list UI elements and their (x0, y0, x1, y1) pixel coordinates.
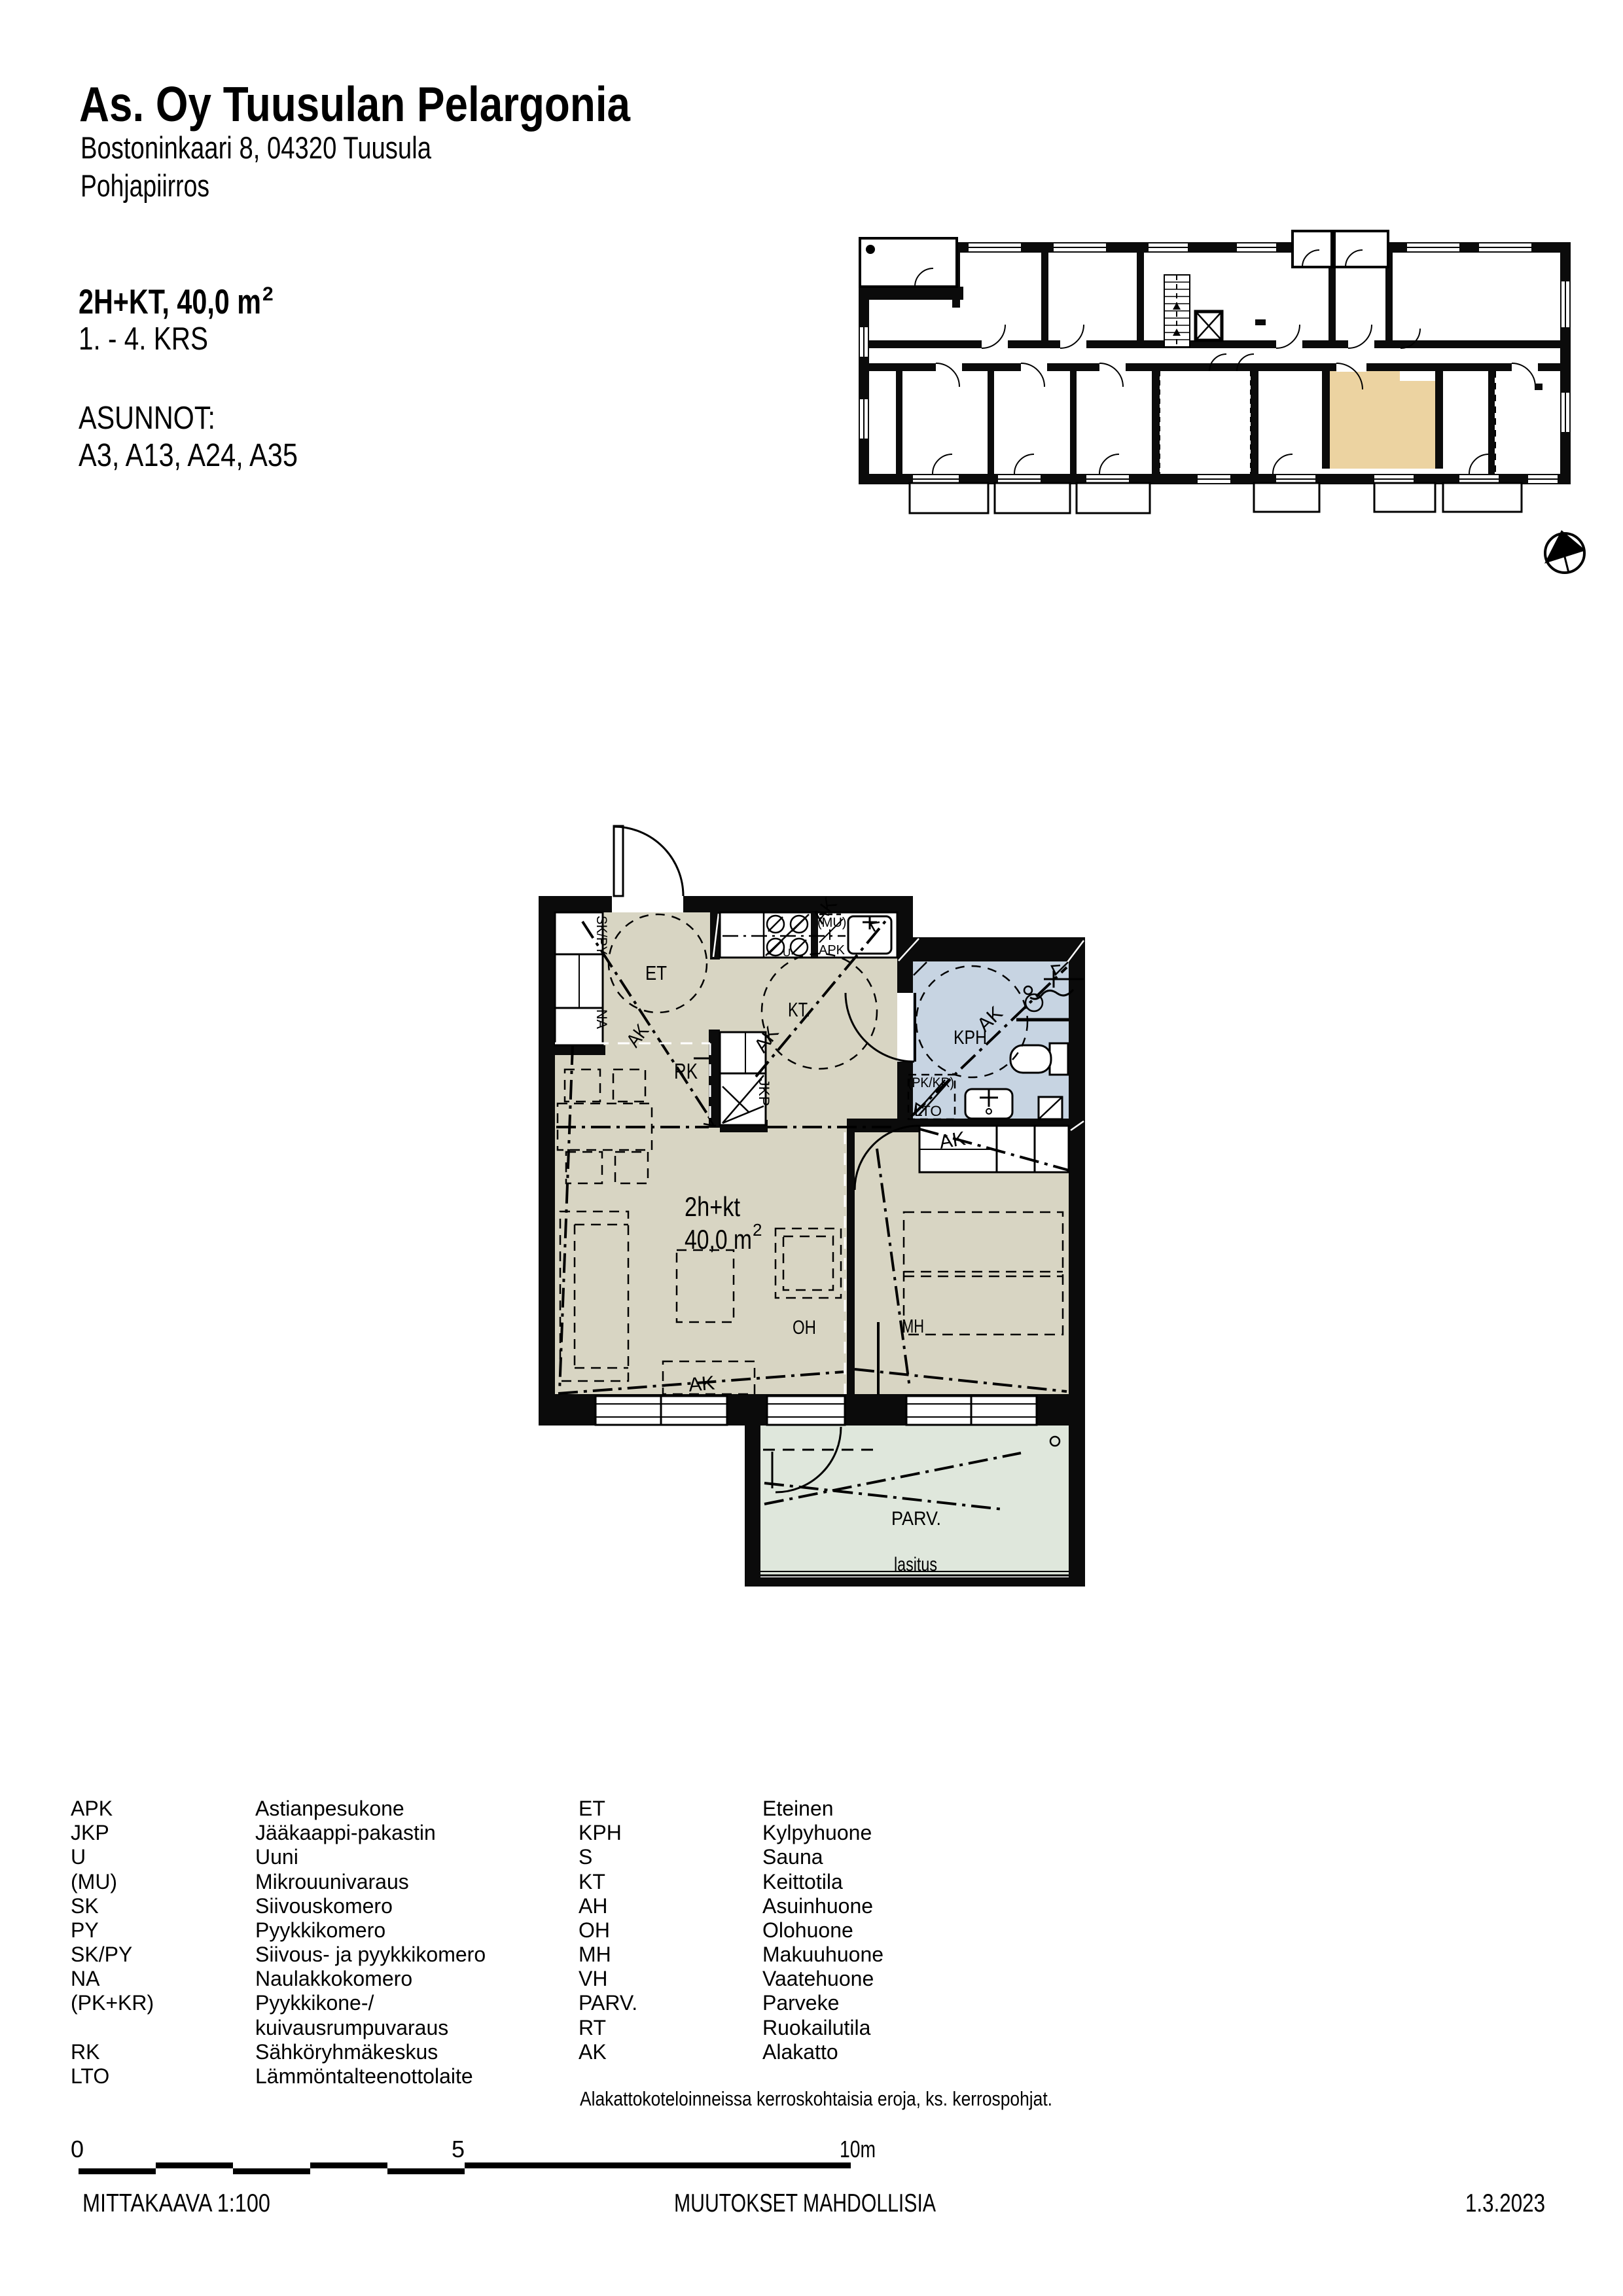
svg-text:AK: AK (579, 2040, 607, 2064)
svg-text:Pyykkikone-/: Pyykkikone-/ (255, 1991, 374, 2015)
svg-text:APK: APK (71, 1797, 113, 1820)
svg-text:40,0 m: 40,0 m (685, 1224, 752, 1255)
svg-text:Makuuhuone: Makuuhuone (762, 1943, 883, 1966)
svg-text:AH: AH (579, 1894, 607, 1918)
svg-text:Uuni: Uuni (255, 1845, 298, 1869)
svg-text:Vaatehuone: Vaatehuone (762, 1967, 874, 1990)
svg-text:MITTAKAAVA 1:100: MITTAKAAVA 1:100 (82, 2189, 270, 2217)
svg-text:Sähköryhmäkeskus: Sähköryhmäkeskus (255, 2040, 438, 2064)
svg-text:Siivouskomero: Siivouskomero (255, 1894, 393, 1918)
svg-text:LTO: LTO (71, 2064, 109, 2088)
svg-text:VH: VH (579, 1967, 607, 1990)
svg-text:OH: OH (793, 1317, 816, 1338)
svg-text:Keittotila: Keittotila (762, 1870, 843, 1893)
svg-text:SK: SK (71, 1894, 99, 1918)
svg-text:ET: ET (645, 961, 667, 984)
svg-text:1.3.2023: 1.3.2023 (1465, 2189, 1545, 2217)
svg-text:lasitus: lasitus (894, 1554, 937, 1575)
svg-text:Siivous- ja pyykkikomero: Siivous- ja pyykkikomero (255, 1943, 486, 1966)
svg-text:2: 2 (753, 1220, 762, 1240)
svg-text:Kylpyhuone: Kylpyhuone (762, 1821, 872, 1844)
svg-text:Alakattokoteloinneissa kerrosk: Alakattokoteloinneissa kerroskohtaisia e… (580, 2087, 1052, 2110)
svg-text:NA: NA (71, 1967, 100, 1990)
svg-text:KPH: KPH (579, 1821, 622, 1844)
svg-text:SK/PY: SK/PY (71, 1943, 132, 1966)
svg-text:MH: MH (902, 1316, 924, 1337)
svg-text:SK/PY: SK/PY (594, 916, 610, 955)
svg-text:2h+kt: 2h+kt (685, 1191, 740, 1222)
svg-text:JKP: JKP (71, 1821, 109, 1844)
svg-text:U: U (71, 1845, 86, 1869)
svg-text:Naulakkokomero: Naulakkokomero (255, 1967, 412, 1990)
svg-text:Astianpesukone: Astianpesukone (255, 1797, 404, 1820)
svg-text:S: S (579, 1845, 592, 1869)
svg-text:JKP: JKP (756, 1079, 772, 1106)
svg-text:Pohjapiirros: Pohjapiirros (80, 168, 209, 203)
svg-text:Parveke: Parveke (762, 1991, 839, 2015)
svg-text:ASUNNOT:: ASUNNOT: (79, 401, 215, 436)
svg-text:Asuinhuone: Asuinhuone (762, 1894, 873, 1918)
svg-text:Ruokailutila: Ruokailutila (762, 2016, 871, 2039)
svg-text:PARV.: PARV. (579, 1991, 637, 2015)
svg-text:Bostoninkaari 8, 04320 Tuusula: Bostoninkaari 8, 04320 Tuusula (80, 130, 432, 165)
svg-text:Alakatto: Alakatto (762, 2040, 838, 2064)
svg-text:1. - 4. KRS: 1. - 4. KRS (79, 321, 208, 357)
svg-text:As. Oy Tuusulan Pelargonia: As. Oy Tuusulan Pelargonia (79, 77, 631, 132)
svg-text:Lämmöntalteenottolaite: Lämmöntalteenottolaite (255, 2064, 473, 2088)
svg-text:RK: RK (71, 2040, 99, 2064)
svg-text:(MU): (MU) (71, 1870, 117, 1893)
svg-text:Olohuone: Olohuone (762, 1918, 853, 1942)
svg-text:U: U (783, 946, 791, 959)
svg-text:MUUTOKSET MAHDOLLISIA: MUUTOKSET MAHDOLLISIA (674, 2189, 936, 2217)
svg-text:NA: NA (594, 1009, 610, 1029)
svg-text:5: 5 (452, 2136, 465, 2162)
svg-text:Jääkaappi-pakastin: Jääkaappi-pakastin (255, 1821, 436, 1844)
svg-text:OH: OH (579, 1918, 610, 1942)
svg-text:RT: RT (579, 2016, 606, 2039)
svg-text:PY: PY (71, 1918, 99, 1942)
svg-text:Eteinen: Eteinen (762, 1797, 834, 1820)
svg-text:2: 2 (262, 283, 274, 305)
svg-text:AK: AK (938, 1128, 967, 1153)
svg-text:0: 0 (71, 2136, 84, 2162)
svg-text:MH: MH (579, 1943, 611, 1966)
svg-text:Pyykkikomero: Pyykkikomero (255, 1918, 385, 1942)
svg-text:Sauna: Sauna (762, 1845, 823, 1869)
svg-text:KT: KT (579, 1870, 605, 1893)
svg-text:AK: AK (688, 1372, 716, 1396)
svg-text:10m: 10m (840, 2136, 876, 2162)
svg-text:Mikrouunivaraus: Mikrouunivaraus (255, 1870, 409, 1893)
svg-text:PARV.: PARV. (891, 1508, 941, 1530)
svg-text:A3, A13, A24, A35: A3, A13, A24, A35 (79, 438, 298, 473)
svg-text:KT.: KT. (788, 998, 810, 1021)
svg-text:kuivausrumpuvaraus: kuivausrumpuvaraus (255, 2016, 448, 2039)
svg-text:(PK+KR): (PK+KR) (71, 1991, 154, 2015)
svg-text:2H+KT, 40,0 m: 2H+KT, 40,0 m (79, 283, 261, 321)
svg-text:ET: ET (579, 1797, 605, 1820)
